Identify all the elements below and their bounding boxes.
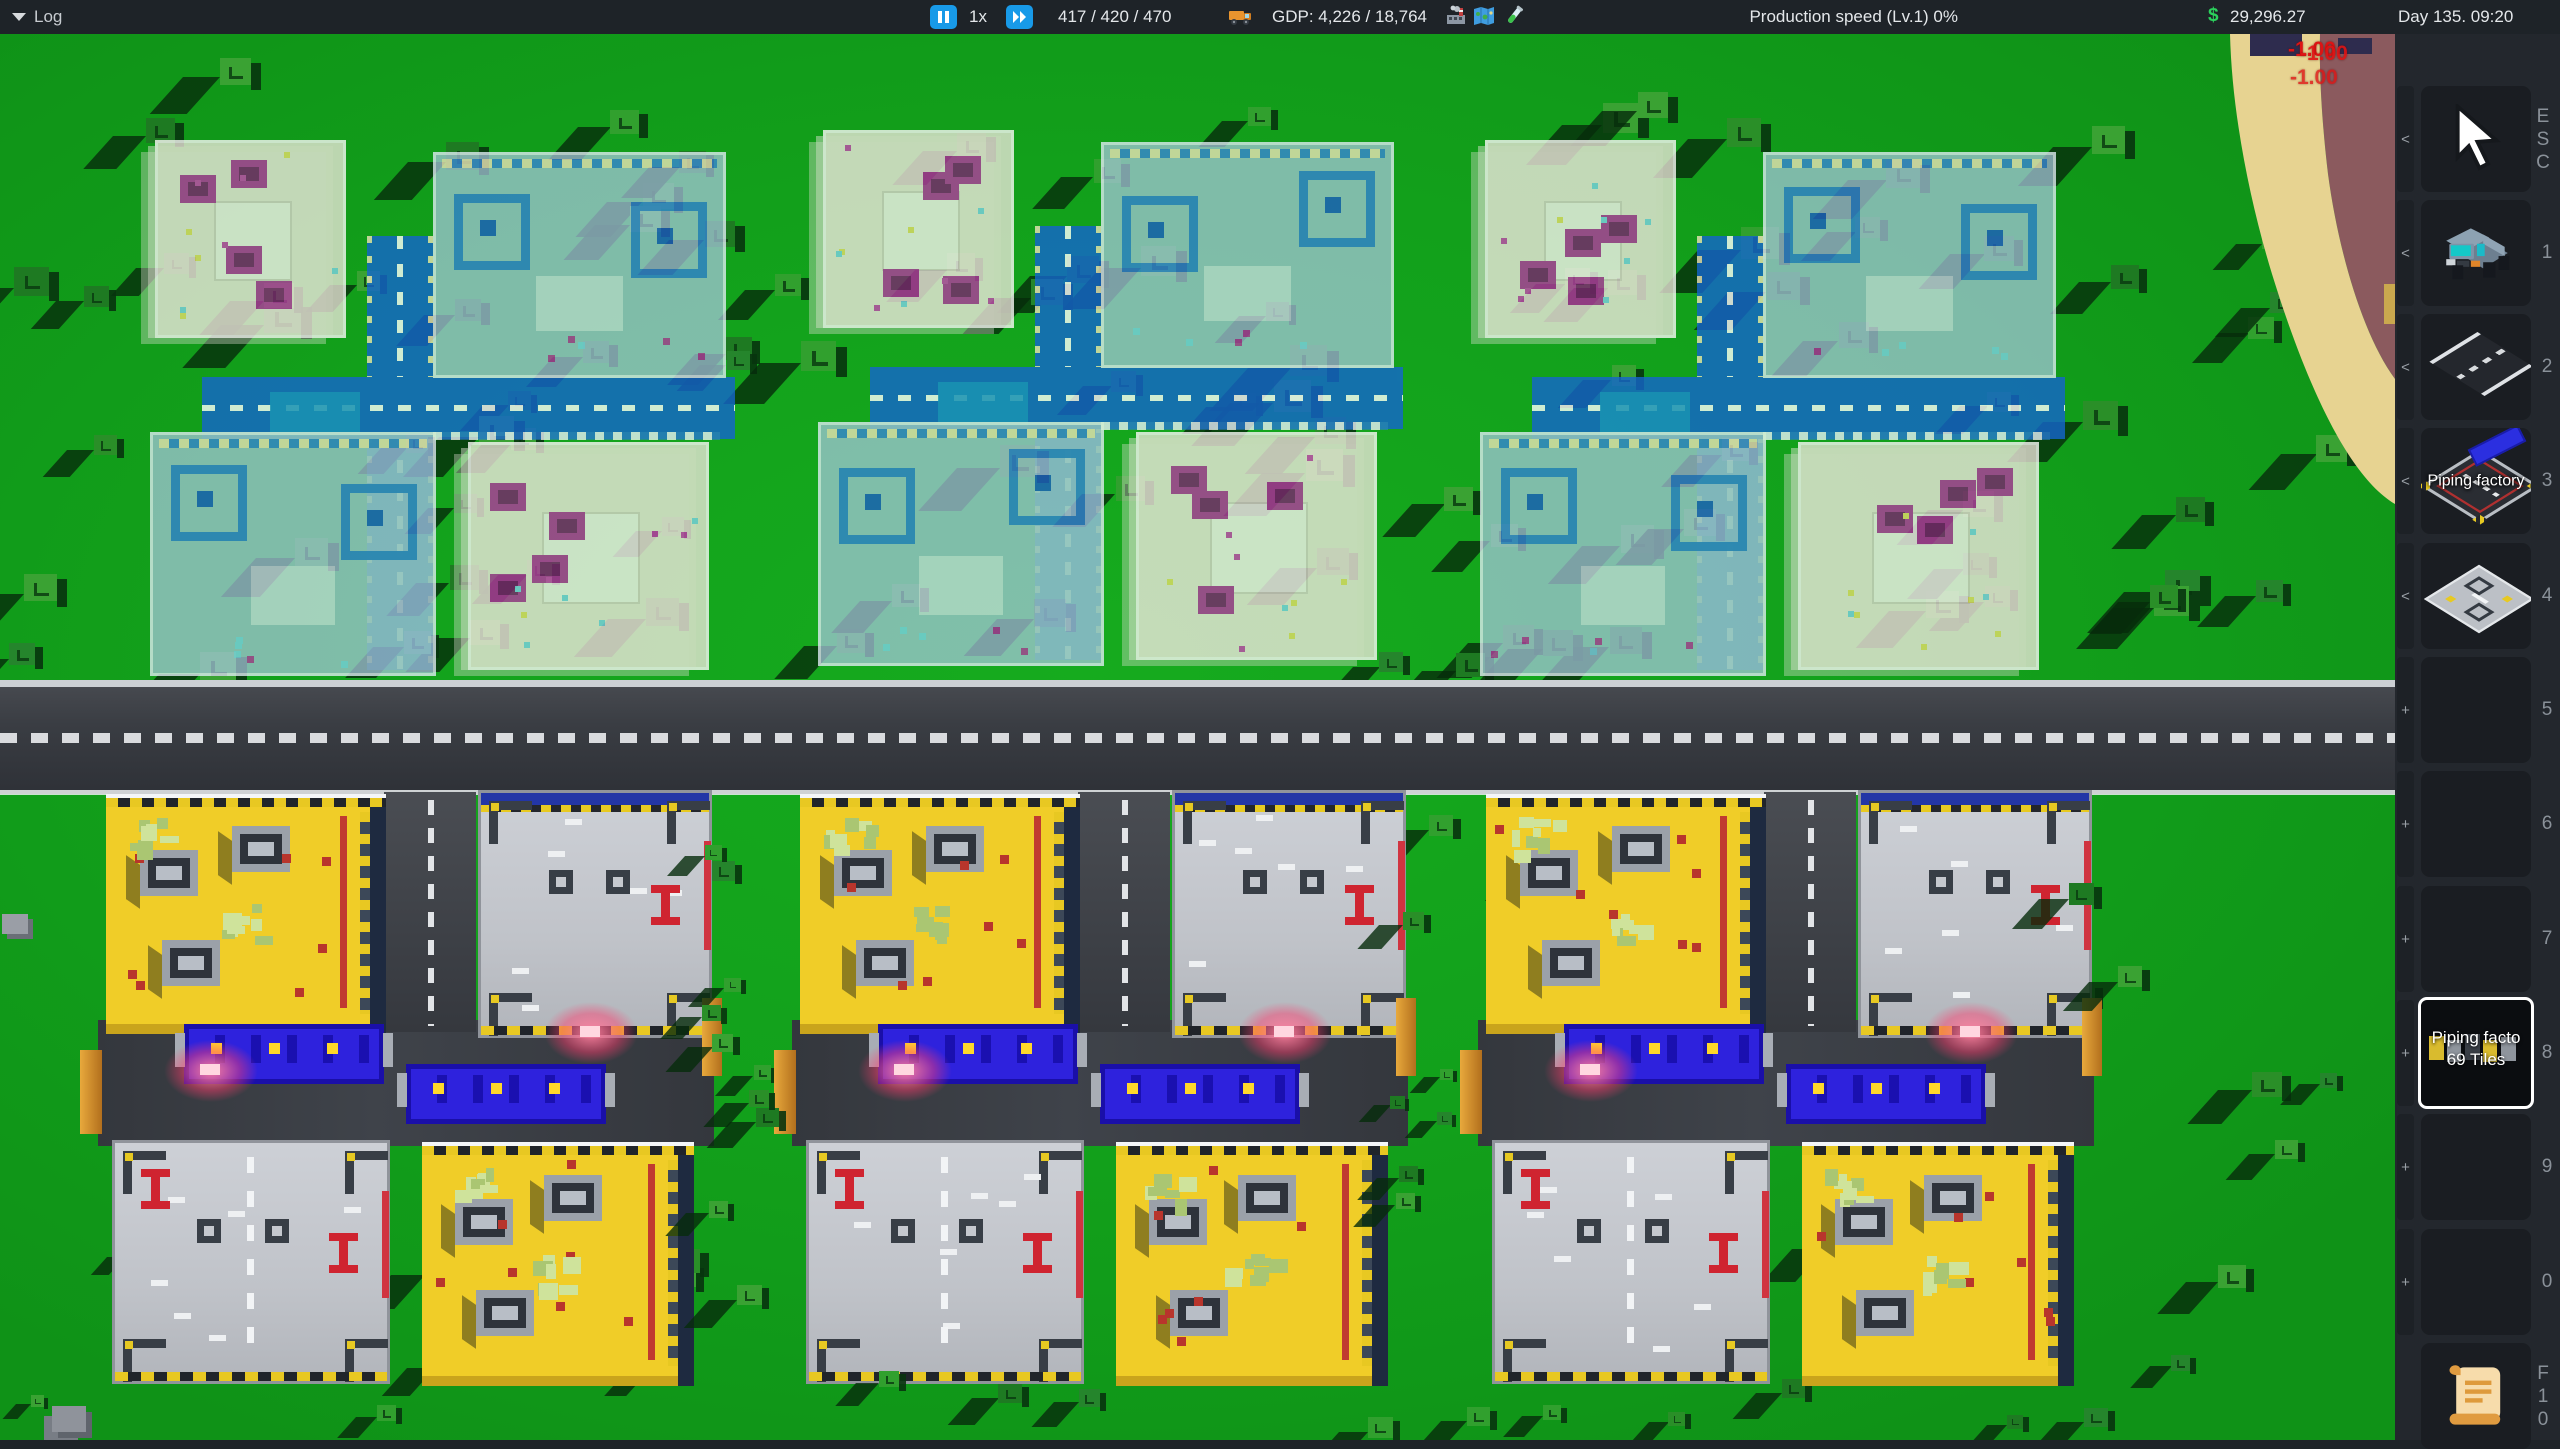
- white-dash: [174, 1313, 191, 1319]
- building-dot: [1167, 579, 1173, 585]
- slot-shortcut: 5: [2536, 657, 2558, 763]
- factory-building-yellow[interactable]: [1486, 794, 1766, 1034]
- tree-notch: [1006, 1390, 1016, 1399]
- magenta-module: [1977, 468, 2013, 496]
- slot-expand-arrow[interactable]: <: [2397, 86, 2414, 192]
- foliage-puff: [914, 907, 929, 917]
- building-dot: [1226, 532, 1232, 538]
- red-dot: [1692, 869, 1701, 878]
- tree-notch: [708, 1010, 717, 1018]
- red-dot: [898, 981, 907, 990]
- corner-dot: [669, 803, 677, 811]
- floor-socket: [1645, 1219, 1669, 1243]
- red-dot: [136, 981, 145, 990]
- slot-add-arrow[interactable]: +: [2397, 1229, 2414, 1335]
- sidebar-slot-log-scroll[interactable]: [2421, 1343, 2531, 1449]
- blueprint-building[interactable]: [1485, 140, 1676, 338]
- corner-dot: [819, 1153, 827, 1161]
- rock: [2, 914, 28, 934]
- conveyor-dot: [1813, 1083, 1824, 1094]
- service-road: [384, 792, 476, 1032]
- tree-shadow: [2130, 1366, 2171, 1388]
- red-dot: [1817, 1232, 1826, 1241]
- platform-square-core: [1035, 475, 1051, 491]
- tree-side: [1393, 1421, 1401, 1440]
- tree-notch: [1465, 660, 1478, 672]
- slot-row: < Piping factory 3: [2395, 428, 2560, 534]
- blueprint-building[interactable]: [823, 130, 1014, 328]
- magenta-module-core: [1200, 498, 1220, 512]
- red-i-mark: [1033, 1239, 1042, 1268]
- building-dot: [186, 229, 192, 235]
- foliage-puff: [1512, 830, 1520, 847]
- corner-dot: [1041, 1341, 1049, 1349]
- red-dot: [128, 970, 137, 979]
- platform-patch: [1581, 566, 1665, 626]
- tree-shadow: [2157, 1282, 2218, 1314]
- factory-floor-icon: [2424, 565, 2531, 633]
- tree-side: [1453, 1071, 1457, 1083]
- magenta-module-core: [1925, 523, 1945, 537]
- building-dot: [1968, 597, 1974, 603]
- red-line: [1342, 1164, 1349, 1360]
- platform-dot: [1243, 330, 1250, 337]
- tree-notch: [25, 276, 40, 290]
- machine-shadow: [1528, 945, 1542, 999]
- factory-platform-gray[interactable]: [1492, 1140, 1770, 1384]
- building-dot: [195, 180, 201, 186]
- tree-notch: [1402, 1198, 1411, 1206]
- tree-side: [639, 114, 648, 138]
- slot-expand-arrow[interactable]: <: [2397, 314, 2414, 420]
- sidebar-slot-factory-floor[interactable]: [2421, 543, 2531, 649]
- blueprint-fence: [1763, 432, 2050, 440]
- tree-notch: [1395, 1100, 1401, 1105]
- log-label[interactable]: Log: [34, 6, 62, 28]
- hazard-strip: [422, 1146, 694, 1155]
- floor-socket: [959, 1219, 983, 1243]
- foliage-puff: [1839, 1174, 1847, 1184]
- red-dot: [2017, 1258, 2026, 1267]
- machine-shadow: [1842, 1295, 1856, 1349]
- platform-checker: [442, 159, 717, 168]
- platform-patch: [251, 566, 335, 626]
- hazard-strip: [809, 1372, 1081, 1381]
- conveyor-dot: [1127, 1083, 1138, 1094]
- sidebar-slot-empty[interactable]: [2421, 886, 2531, 992]
- foliage-puff: [830, 834, 847, 848]
- tree-notch: [755, 1095, 764, 1103]
- truck-icon: [2437, 222, 2517, 284]
- red-i-mark: [1719, 1239, 1728, 1268]
- sidebar-slot-empty[interactable]: [2421, 657, 2531, 763]
- game-viewport[interactable]: -1.00 -1.00 -1.00: [0, 34, 2395, 1440]
- tree-side: [2094, 887, 2102, 909]
- platform-dot: [1814, 348, 1821, 355]
- blueprint-water-patch: [270, 392, 360, 436]
- building-dot: [1501, 238, 1507, 244]
- platform-square-core: [197, 491, 213, 507]
- red-dot: [1000, 855, 1009, 864]
- corner-dot: [1185, 995, 1193, 1003]
- sidebar-slot-empty[interactable]: [2421, 1114, 2531, 1220]
- slot-shortcut: 0: [2536, 1229, 2558, 1335]
- white-dash: [1694, 1304, 1711, 1310]
- tree-notch: [710, 850, 717, 856]
- fast-forward-button[interactable]: [1006, 5, 1033, 29]
- factory-icon: [1444, 5, 1468, 27]
- conveyor-cap: [1777, 1073, 1787, 1107]
- tree-side: [722, 848, 727, 863]
- building-dot: [1848, 611, 1854, 617]
- sidebar-slot-road[interactable]: [2421, 314, 2531, 420]
- slot-row: + Piping facto 69 Tiles 8: [2395, 1000, 2560, 1106]
- tree-side: [762, 1288, 770, 1309]
- machine-block: [856, 940, 914, 986]
- magenta-module: [1171, 466, 1207, 494]
- conveyor-dot: [1185, 1083, 1196, 1094]
- tree-side: [721, 1008, 727, 1024]
- conveyor-dot: [1871, 1083, 1882, 1094]
- top-status-bar: Log 1x 417 / 420 / 470 GDP: 4,226 / 18,7…: [0, 0, 2560, 34]
- tree-notch: [719, 867, 729, 876]
- platform-dot: [234, 651, 241, 658]
- red-line: [340, 816, 347, 1008]
- white-dash: [1527, 1212, 1544, 1218]
- tree-side: [1022, 1387, 1029, 1407]
- factory-building-yellow[interactable]: [1116, 1142, 1388, 1386]
- tree-notch: [1444, 1072, 1450, 1077]
- center-dash-line: [1627, 1157, 1634, 1351]
- tree-side: [735, 865, 742, 885]
- slot-add-arrow[interactable]: +: [2397, 771, 2414, 877]
- building-dot: [692, 518, 698, 524]
- slot-row: < ESC: [2395, 86, 2560, 192]
- conveyor-cap: [605, 1073, 615, 1107]
- floor-dot: [2445, 595, 2456, 602]
- foliage-puff: [1638, 925, 1654, 939]
- road-dashes: [1808, 800, 1814, 1026]
- pause-icon: [930, 5, 957, 29]
- platform-dot: [568, 336, 575, 343]
- tree-notch: [1647, 101, 1661, 113]
- tree-notch: [2282, 1146, 2292, 1155]
- red-i-mark: [1345, 917, 1374, 925]
- tree-side: [2178, 589, 2187, 612]
- blueprint-building[interactable]: [1136, 432, 1377, 660]
- platform-square-core: [1697, 501, 1713, 517]
- red-dot: [1495, 825, 1504, 834]
- right-rack: [668, 1160, 678, 1366]
- building-core: [882, 191, 960, 272]
- red-i-mark: [339, 1239, 348, 1268]
- tree-notch: [92, 293, 102, 303]
- building-dot: [1341, 579, 1347, 585]
- foliage-puff: [1534, 819, 1550, 826]
- corner-dot: [1727, 1341, 1735, 1349]
- slot-shortcut: 6: [2536, 771, 2558, 877]
- platform-square-core: [367, 510, 383, 526]
- right-rack: [2048, 1160, 2058, 1366]
- magenta-module: [490, 574, 526, 602]
- factory-group[interactable]: [800, 792, 1400, 1392]
- slot-add-arrow[interactable]: +: [2397, 1114, 2414, 1220]
- date-time: Day 135. 09:20: [2398, 6, 2513, 28]
- tree-shadow: [1631, 1422, 1668, 1440]
- corner-dot: [1363, 995, 1371, 1003]
- red-dot: [567, 1160, 576, 1169]
- red-edge-stripe: [1076, 1191, 1083, 1298]
- machine-shadow: [148, 945, 162, 999]
- tree-side: [49, 272, 60, 301]
- platform-square-outline: [1122, 196, 1198, 272]
- shoreline: [2100, 34, 2395, 574]
- building-dot: [1854, 612, 1860, 618]
- magenta-module: [1565, 229, 1601, 257]
- foliage-puff: [157, 818, 168, 829]
- foliage-puff: [1936, 1263, 1949, 1279]
- foliage-puff: [1269, 1259, 1288, 1273]
- foliage-puff: [252, 904, 261, 912]
- conveyor-dot: [327, 1043, 338, 1054]
- conveyor-dot: [549, 1083, 560, 1094]
- tree-notch: [734, 357, 744, 366]
- tree-notch: [2325, 1078, 2333, 1086]
- building-dot: [599, 620, 605, 626]
- tree-notch: [2159, 592, 2172, 604]
- machine-block: [1238, 1175, 1296, 1221]
- fast-forward-icon: [1006, 5, 1033, 29]
- pause-button[interactable]: [930, 5, 957, 29]
- tree-notch: [763, 1114, 773, 1123]
- tree-side: [779, 1111, 786, 1130]
- foliage-puff: [1526, 836, 1539, 848]
- red-line: [2028, 1164, 2035, 1360]
- floor-socket: [1577, 1219, 1601, 1243]
- tree-side: [2298, 1143, 2305, 1162]
- building-dot: [180, 307, 186, 313]
- red-dot: [2044, 1308, 2053, 1317]
- blueprint-cluster[interactable]: [1480, 140, 2065, 670]
- factory-platform-gray[interactable]: [806, 1140, 1084, 1384]
- slot-add-arrow[interactable]: +: [2397, 886, 2414, 992]
- machine-block: [1856, 1290, 1914, 1336]
- corner-dot: [1505, 1153, 1513, 1161]
- foliage-puff: [1948, 1279, 1966, 1289]
- platform-dot: [2001, 353, 2008, 360]
- tree-notch: [715, 1206, 724, 1214]
- white-dash: [1900, 826, 1917, 832]
- factory-group[interactable]: [106, 792, 706, 1392]
- magenta-module-core: [1573, 236, 1593, 250]
- pillar-orange: [80, 1050, 102, 1134]
- platform-square-core: [1810, 213, 1826, 229]
- magenta-module-core: [1528, 268, 1548, 282]
- factory-building-yellow[interactable]: [422, 1142, 694, 1386]
- magenta-module-core: [1275, 489, 1295, 503]
- factory-building-yellow[interactable]: [800, 794, 1080, 1034]
- tree-side: [728, 1204, 734, 1221]
- blueprint-fence: [1101, 422, 1388, 430]
- warning-light-core: [1960, 1026, 1980, 1037]
- tree-notch: [2177, 1360, 2185, 1368]
- white-dash: [512, 968, 529, 974]
- slot-shortcut: 1: [2536, 200, 2558, 306]
- white-dash: [344, 1207, 361, 1213]
- slot-add-arrow[interactable]: +: [2397, 1000, 2414, 1106]
- machine-block: [1612, 826, 1670, 872]
- foliage-puff: [251, 919, 262, 930]
- building-dot: [681, 532, 687, 538]
- blueprint-platform: [1480, 432, 1766, 676]
- floor-socket: [1929, 870, 1953, 894]
- tree-notch: [2012, 1419, 2019, 1425]
- blueprint-building[interactable]: [1798, 442, 2039, 670]
- tree-side: [1453, 819, 1460, 839]
- tree-shadow: [336, 1417, 377, 1438]
- tree-side: [1561, 1408, 1567, 1423]
- machine-shadow: [1135, 1204, 1149, 1258]
- blueprint-name: Piping facto: [2421, 1028, 2531, 1048]
- tree-side: [44, 1398, 48, 1409]
- slot-expand-arrow[interactable]: <: [2397, 200, 2414, 306]
- magenta-module: [1267, 482, 1303, 510]
- red-line: [648, 1164, 655, 1360]
- sidebar-slot-select-tool[interactable]: [2421, 86, 2531, 192]
- platform-square-outline: [631, 202, 707, 278]
- building-dot: [1995, 631, 2001, 637]
- rock: [52, 1406, 86, 1432]
- red-i-mark: [151, 1175, 160, 1204]
- sidebar-slot-blueprint-selected[interactable]: Piping facto 69 Tiles: [2418, 997, 2534, 1109]
- right-rack: [1740, 812, 1750, 1014]
- building-dot: [652, 531, 658, 537]
- blueprint-cluster[interactable]: [150, 140, 735, 670]
- foliage-puff: [935, 906, 951, 917]
- money-amount: 29,296.27: [2230, 6, 2306, 28]
- red-dot: [960, 861, 969, 870]
- foliage-puff: [546, 1264, 556, 1279]
- platform-dot: [1021, 648, 1028, 655]
- tree-notch: [1453, 495, 1466, 507]
- tree-notch: [34, 583, 48, 596]
- sidebar-slot-piping-factory[interactable]: Piping factory: [2421, 428, 2531, 534]
- white-dash: [1653, 1346, 1670, 1352]
- tree-shadow: [2226, 1154, 2275, 1180]
- slot-row: + 7: [2395, 886, 2560, 992]
- building-dot: [332, 268, 338, 274]
- platform-dot: [1522, 637, 1529, 644]
- foliage-puff: [1179, 1177, 1196, 1192]
- log-scroll-icon: [2443, 1360, 2509, 1432]
- platform-patch: [919, 556, 1003, 616]
- sidebar-slot-empty[interactable]: [2421, 771, 2531, 877]
- building-dot: [874, 305, 880, 311]
- magenta-module-core: [557, 519, 577, 533]
- platform-square-outline: [1784, 187, 1860, 263]
- tree-side: [117, 439, 124, 459]
- red-i-mark: [141, 1201, 170, 1209]
- building-dot: [546, 577, 552, 583]
- magenta-module: [180, 175, 216, 203]
- platform-square-core: [1325, 197, 1341, 213]
- conveyor-cap: [1299, 1073, 1309, 1107]
- floor-socket: [1300, 870, 1324, 894]
- white-dash: [1278, 864, 1295, 870]
- building-dot: [515, 586, 521, 592]
- magenta-module: [1917, 516, 1953, 544]
- slot-add-arrow[interactable]: +: [2397, 657, 2414, 763]
- tree-notch: [783, 281, 795, 292]
- hazard-post: [2527, 481, 2531, 491]
- floor-socket: [606, 870, 630, 894]
- tree-notch: [1549, 1410, 1557, 1418]
- slot-expand-arrow[interactable]: <: [2397, 428, 2414, 534]
- platform-dot: [1595, 638, 1602, 645]
- red-dot: [1677, 835, 1686, 844]
- machine-shadow: [1910, 1180, 1924, 1234]
- white-dash: [1942, 930, 1959, 936]
- tree-side: [2283, 584, 2291, 607]
- corner-dot: [491, 995, 499, 1003]
- corner-dot: [347, 1341, 355, 1349]
- tree-side: [1668, 97, 1677, 123]
- magenta-module: [490, 483, 526, 511]
- factory-building-yellow[interactable]: [106, 794, 386, 1034]
- log-expand-icon[interactable]: [12, 13, 26, 21]
- sidebar-slot-empty[interactable]: [2421, 1229, 2531, 1335]
- platform-patch: [1204, 266, 1290, 321]
- platform-dot: [900, 627, 907, 634]
- conveyor-dot: [1707, 1043, 1718, 1054]
- foliage-puff: [227, 926, 246, 934]
- factory-platform-gray[interactable]: [112, 1140, 390, 1384]
- red-dot: [1576, 890, 1585, 899]
- floor-mark: [2463, 576, 2494, 595]
- machine-block: [232, 826, 290, 872]
- blueprint-building[interactable]: [468, 442, 709, 670]
- slot-expand-arrow[interactable]: <: [2397, 543, 2414, 649]
- foliage-puff: [1148, 1187, 1167, 1195]
- toolbar-sidebar: < ESC <: [2395, 34, 2560, 1440]
- blueprint-building[interactable]: [155, 140, 346, 338]
- building-dot: [195, 255, 201, 261]
- platform-square-core: [657, 228, 673, 244]
- road-icon-dashes: [2456, 349, 2505, 380]
- platform-square-outline: [1299, 171, 1375, 247]
- building-dot: [988, 298, 994, 304]
- building-dot: [1603, 297, 1609, 303]
- blueprint-cluster[interactable]: [818, 130, 1403, 660]
- slot-shortcut: 9: [2536, 1114, 2558, 1220]
- hazard-strip: [106, 798, 386, 807]
- magenta-module: [1520, 261, 1556, 289]
- white-dash: [1199, 840, 1216, 846]
- foliage-puff: [1843, 1188, 1857, 1200]
- factory-building-yellow[interactable]: [1802, 1142, 2074, 1386]
- tree-notch: [2264, 587, 2276, 598]
- factory-group[interactable]: [1486, 792, 2086, 1392]
- pillar-orange: [1396, 998, 1416, 1076]
- building-dot: [1983, 594, 1989, 600]
- platform-dot: [919, 633, 926, 640]
- tree-notch: [17, 650, 29, 661]
- sidebar-slot-truck[interactable]: [2421, 200, 2531, 306]
- hazard-strip: [800, 798, 1080, 807]
- slot-shortcut: 3: [2536, 428, 2558, 534]
- hazard-strip: [115, 1372, 387, 1381]
- magenta-module-core: [953, 163, 973, 177]
